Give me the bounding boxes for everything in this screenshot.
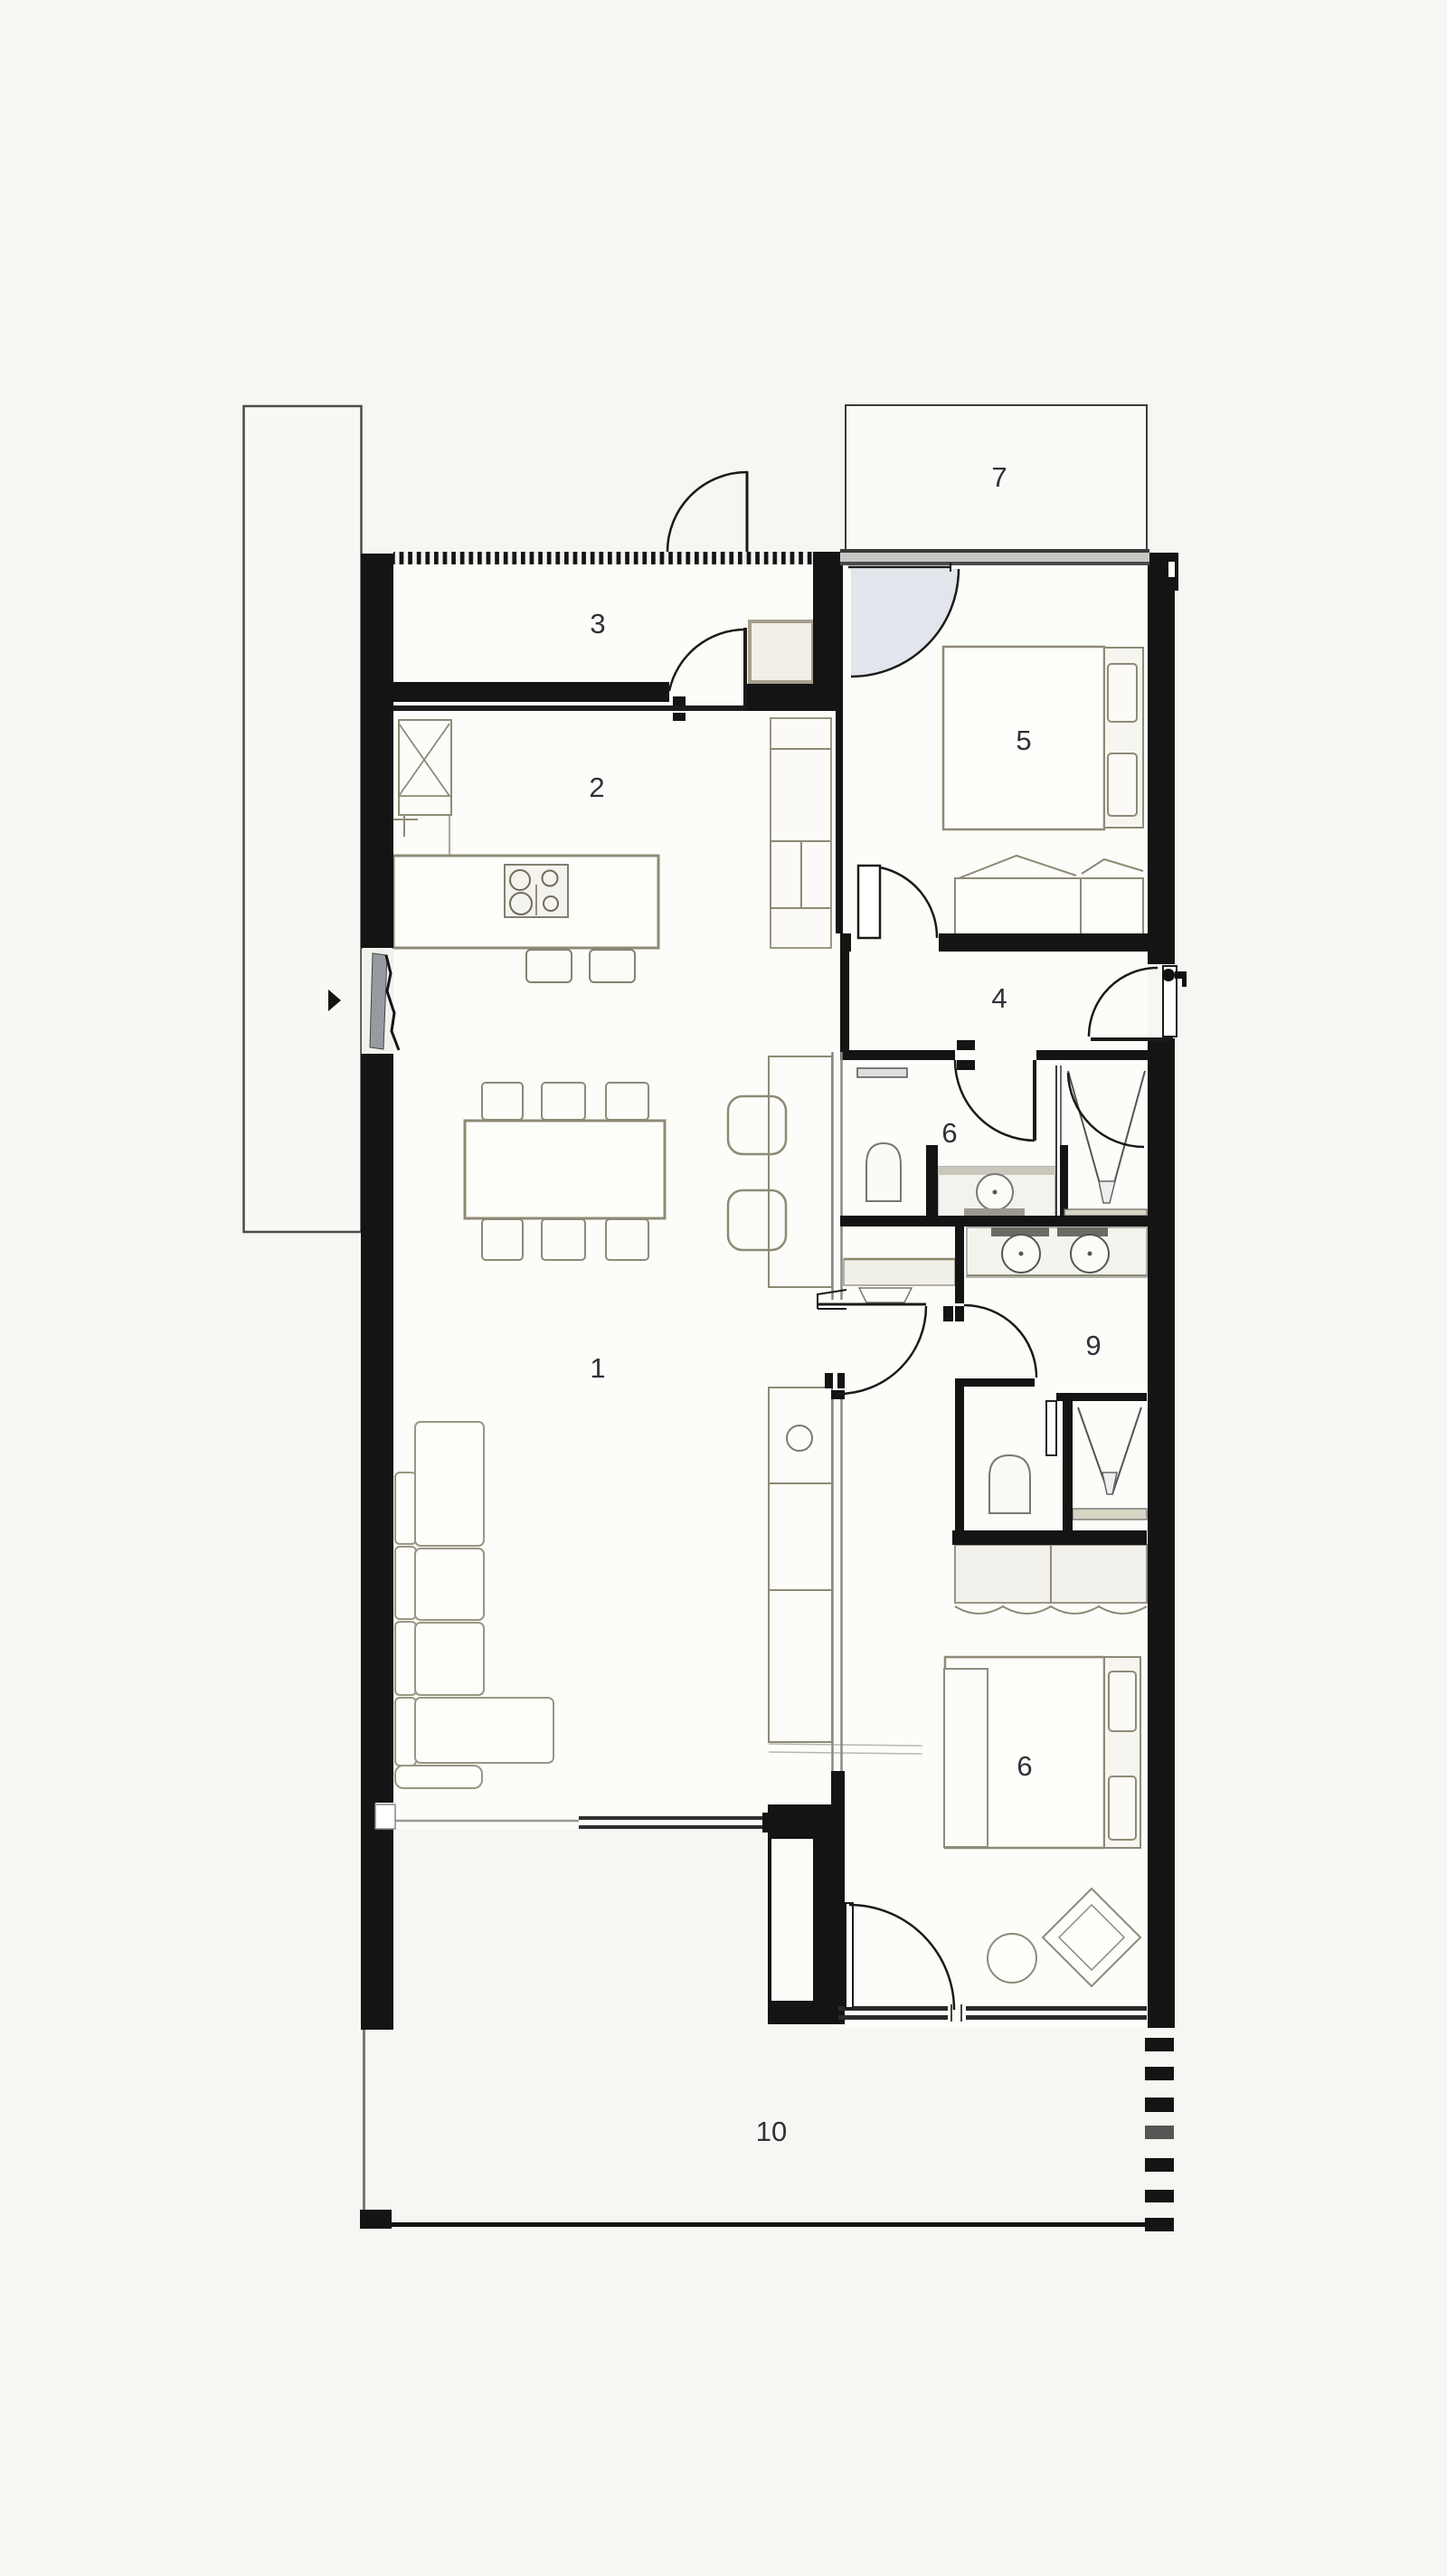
svg-text:9: 9 bbox=[1085, 1330, 1101, 1361]
svg-text:2: 2 bbox=[589, 772, 604, 803]
svg-text:6: 6 bbox=[1017, 1750, 1032, 1782]
svg-text:7: 7 bbox=[991, 461, 1007, 493]
svg-text:5: 5 bbox=[1016, 724, 1031, 756]
svg-text:10: 10 bbox=[756, 2116, 787, 2147]
svg-text:3: 3 bbox=[590, 608, 605, 639]
svg-text:4: 4 bbox=[991, 982, 1007, 1014]
svg-text:6: 6 bbox=[941, 1117, 957, 1149]
svg-text:1: 1 bbox=[590, 1352, 605, 1384]
